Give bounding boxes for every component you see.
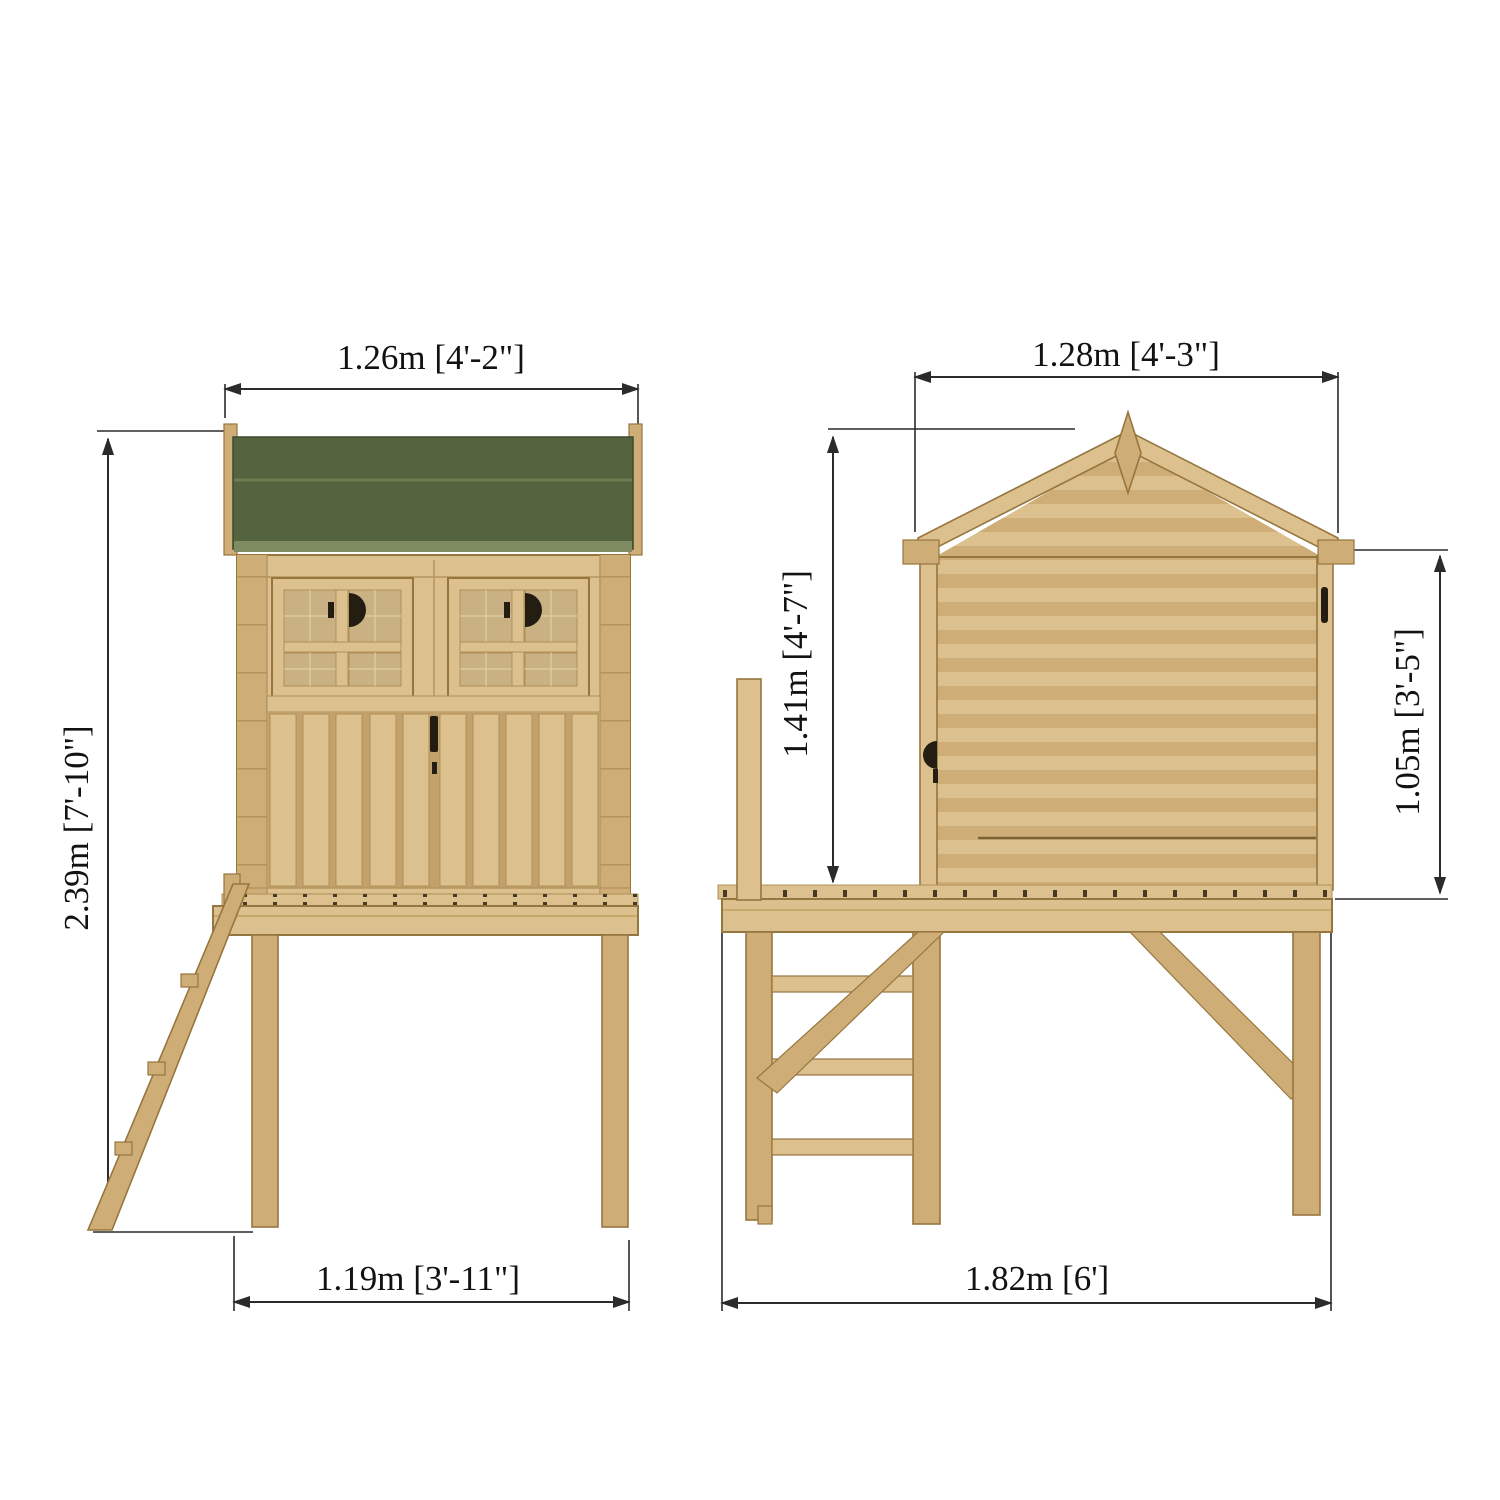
side-brace-right (1130, 932, 1313, 1099)
platform-beam (213, 906, 638, 935)
side-platform (718, 885, 1332, 932)
dim-front-height-label: 2.39m [7'-10"] (57, 725, 96, 930)
side-door-latch-pin (933, 769, 938, 783)
front-roof-eave-shade (234, 541, 632, 552)
side-wall-cladding (936, 558, 1321, 889)
balustrade-slat (270, 714, 296, 886)
dim-front-base-label: 1.19m [3'-11"] (316, 1259, 520, 1298)
drawing-canvas: 1.26m [4'-2"] 2.39m [7'-10"] 1.19m [3'-1… (0, 0, 1500, 1500)
front-ladder (88, 874, 249, 1230)
ladder-rail (88, 884, 249, 1230)
balustrade-slat (539, 714, 565, 886)
front-balustrade (237, 696, 630, 888)
door-latch-pin (432, 762, 437, 774)
dim-side-base-width: 1.82m [6'] (722, 890, 1331, 1311)
side-corner-trim-left (920, 556, 937, 890)
window-mullion-vertical (336, 590, 348, 686)
front-roof (233, 437, 633, 549)
balustrade-top-rail (267, 696, 600, 712)
dim-front-base-width: 1.19m [3'-11"] (234, 1236, 629, 1311)
front-left-leg (252, 935, 278, 1227)
dim-side-wall-height: 1.05m [3'-5"] (1335, 550, 1448, 899)
front-window-left (272, 578, 413, 698)
dim-side-apex-label: 1.41m [4'-7"] (776, 570, 815, 758)
platform-beam (722, 899, 1332, 932)
front-window-right (448, 578, 589, 698)
dim-front-width: 1.26m [4'-2"] (225, 338, 638, 430)
ladder-rung-stub (148, 1062, 165, 1075)
front-playhouse (88, 424, 642, 1230)
balustrade-slat (336, 714, 362, 886)
ladder-foot (758, 1206, 772, 1224)
side-right-leg (1293, 932, 1320, 1215)
deck-fixings (718, 885, 1332, 899)
side-eave-block-left (903, 540, 939, 564)
side-view: 1.28m [4'-3"] 1.41m [4'-7"] 1.05m [3'-5"… (718, 335, 1448, 1311)
front-view: 1.26m [4'-2"] 2.39m [7'-10"] 1.19m [3'-1… (57, 338, 642, 1311)
balustrade-slat (440, 714, 466, 886)
window-mullion-horizontal (460, 642, 577, 652)
ladder-rung-stub (115, 1142, 132, 1155)
side-wall-hinge (1321, 587, 1328, 623)
ladder-rung-stub (181, 974, 198, 987)
door-latch (430, 716, 438, 752)
balustrade-slat (370, 714, 396, 886)
front-right-leg (602, 935, 628, 1227)
side-balustrade-post (737, 679, 761, 900)
window-mullion-horizontal (284, 642, 401, 652)
window-catch (504, 602, 510, 618)
front-side-panel-right-lines (600, 555, 630, 905)
window-catch (328, 602, 334, 618)
ladder-rail-right (913, 932, 940, 1224)
ladder-rung (772, 1139, 913, 1155)
side-playhouse (718, 412, 1354, 1224)
balustrade-slat (506, 714, 532, 886)
balustrade-slat (473, 714, 499, 886)
playhouse-technical-drawing: 1.26m [4'-2"] 2.39m [7'-10"] 1.19m [3'-1… (0, 0, 1500, 1500)
dim-front-width-label: 1.26m [4'-2"] (337, 338, 525, 377)
balustrade-slat (572, 714, 598, 886)
front-side-panel-left-lines (237, 555, 267, 905)
front-platform (213, 894, 638, 935)
balustrade-slat (303, 714, 329, 886)
side-eave-block-right (1318, 540, 1354, 564)
balustrade-slat (403, 714, 429, 886)
window-mullion-vertical (512, 590, 524, 686)
deck-fixings (222, 894, 638, 906)
dim-side-wall-label: 1.05m [3'-5"] (1388, 628, 1427, 816)
dim-side-width-label: 1.28m [4'-3"] (1032, 335, 1220, 374)
dim-side-base-label: 1.82m [6'] (965, 1259, 1109, 1298)
